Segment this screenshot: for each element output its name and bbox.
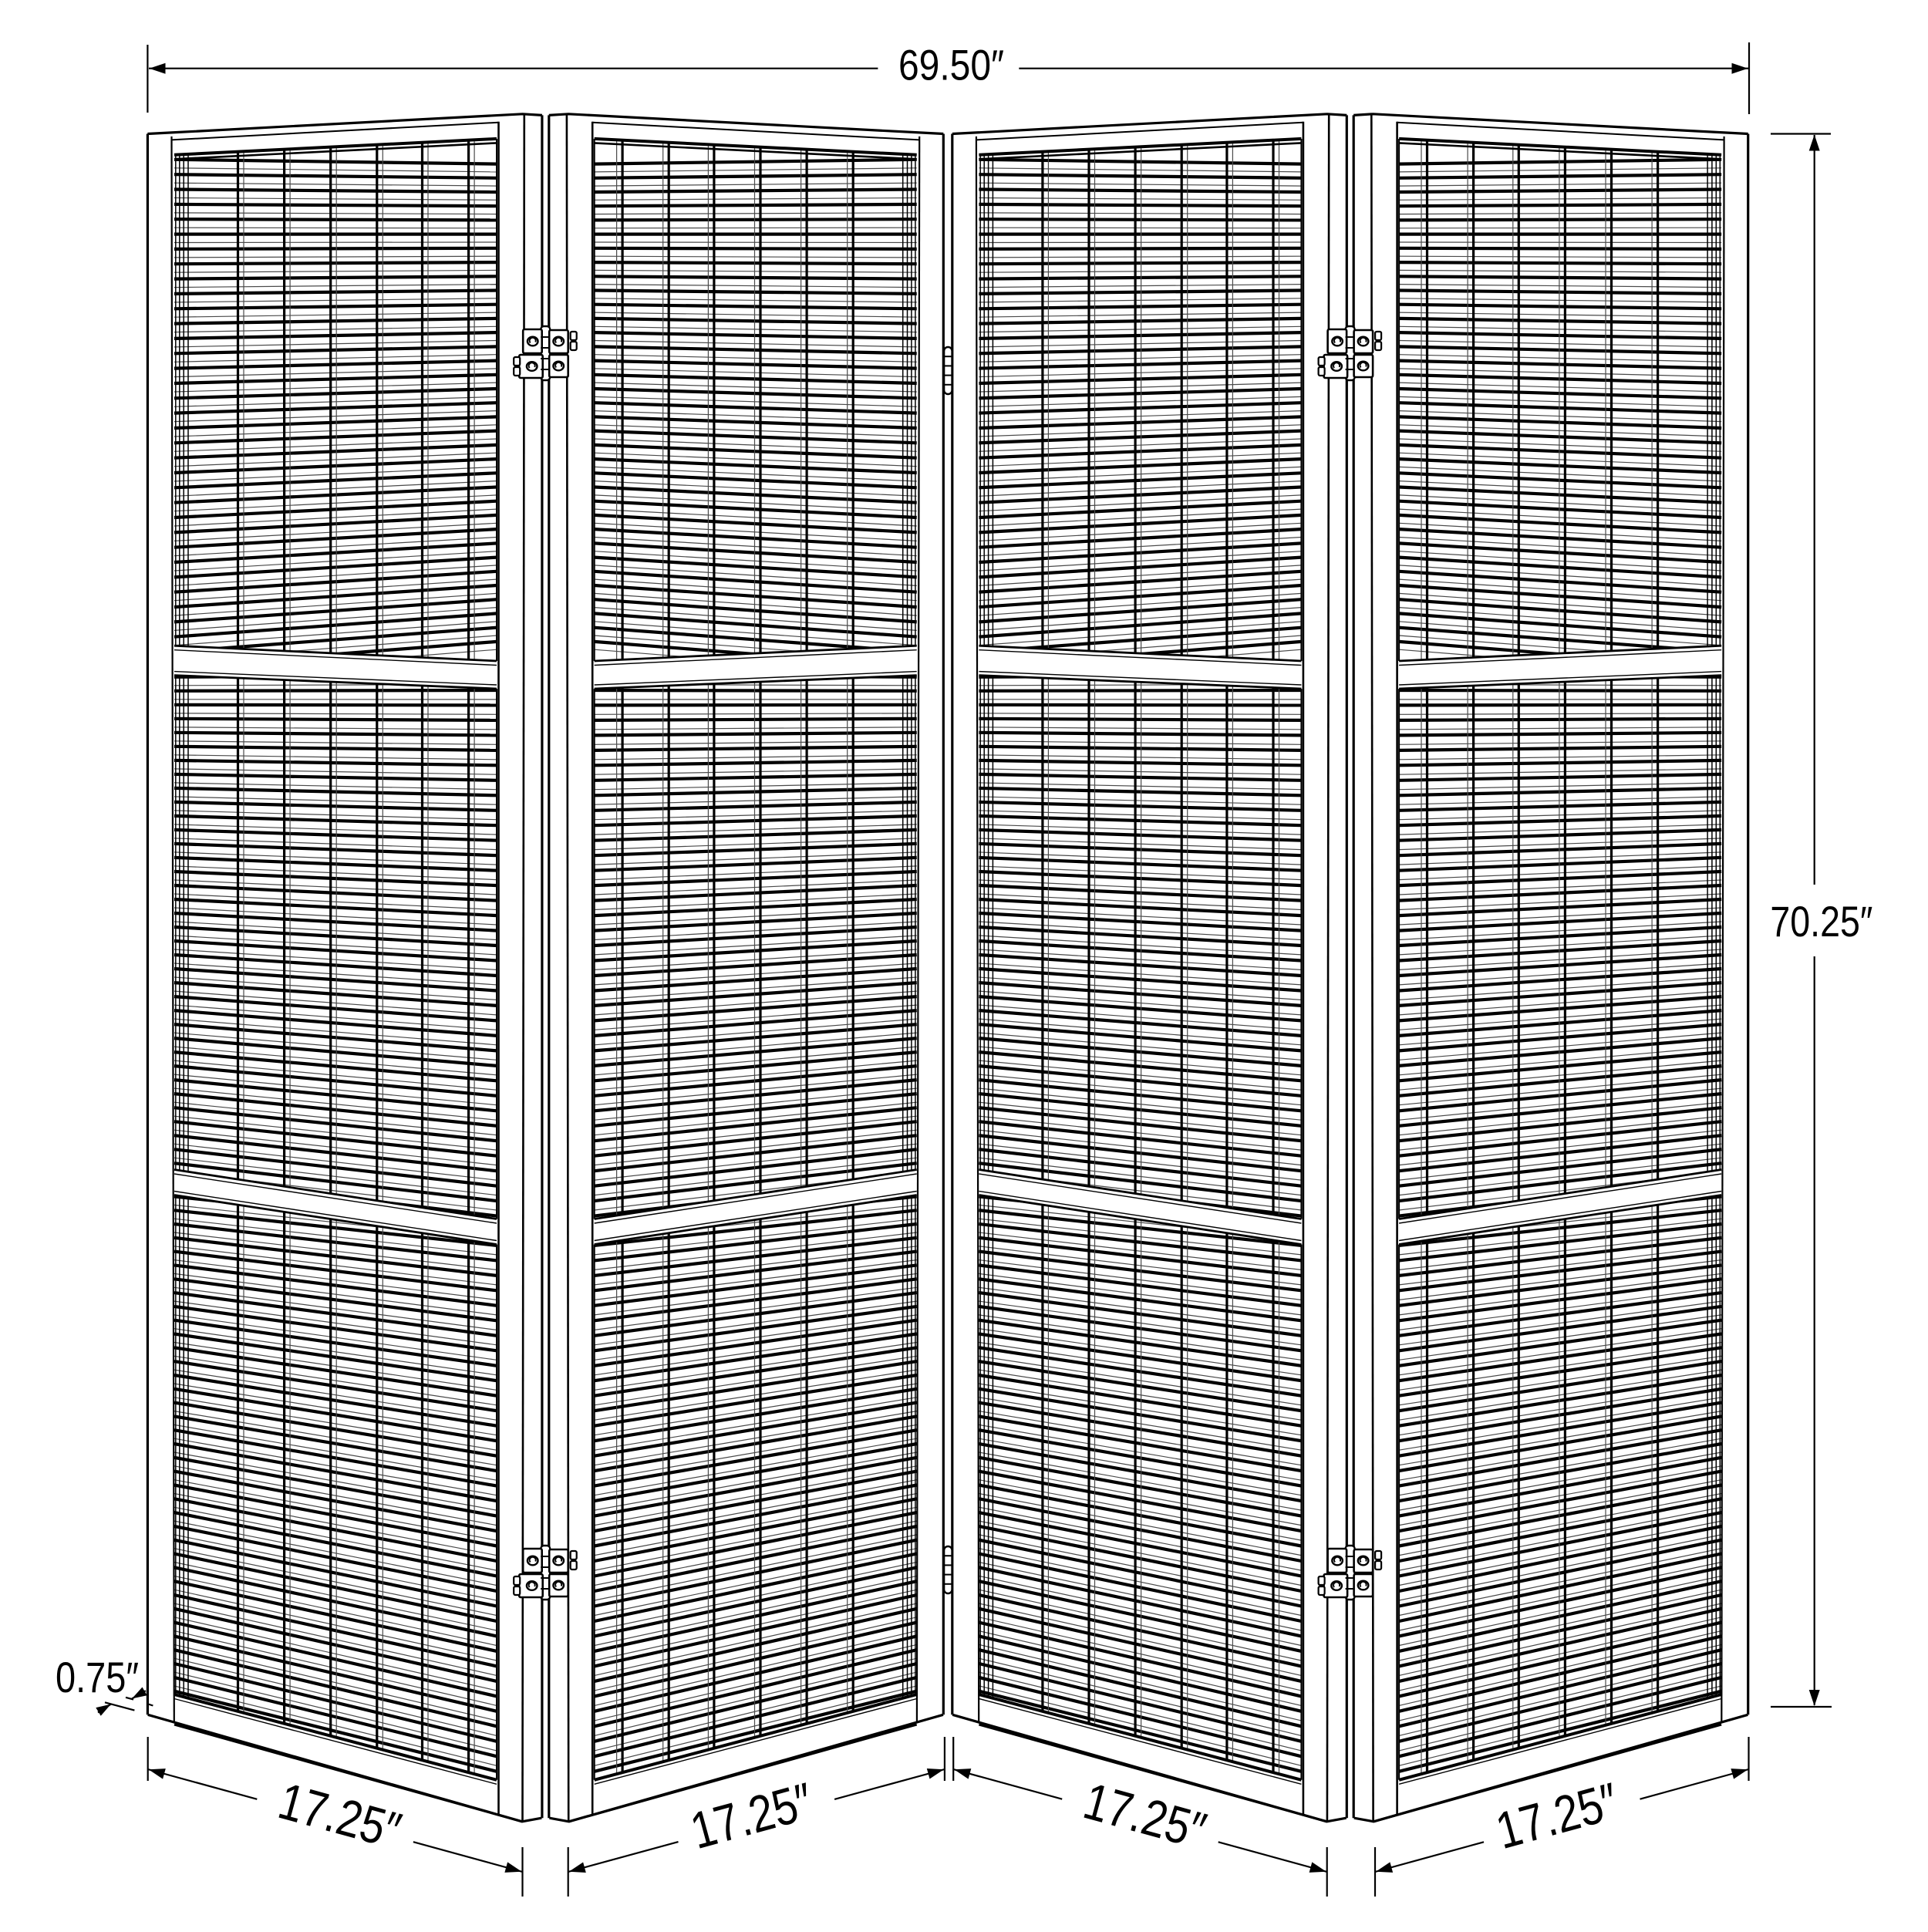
svg-text:0.75″: 0.75″	[56, 1654, 139, 1701]
svg-text:69.50″: 69.50″	[898, 42, 1004, 89]
svg-text:70.25″: 70.25″	[1770, 898, 1872, 946]
